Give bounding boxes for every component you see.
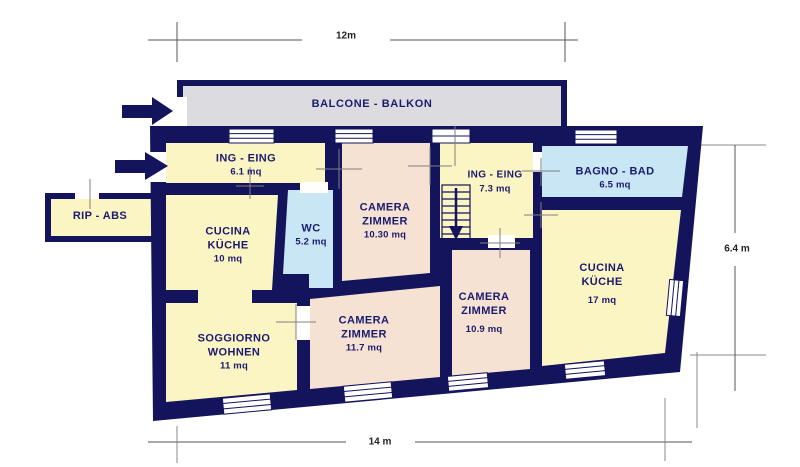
annex-door-opening xyxy=(75,193,99,199)
dimension-top-label: 12m xyxy=(336,31,356,42)
floor-plan: 12m 14 m 6.4 m BALCONE - BALKON RIP - AB… xyxy=(0,0,800,467)
room-label-wc: WC 5.2 mq xyxy=(295,222,326,249)
room-label-ing-eing-1: ING - EING 6.1 mq xyxy=(216,152,276,179)
room-label-cucina-17: CUCINA KÜCHE 17 mq xyxy=(579,261,624,307)
entrance-arrow-icon xyxy=(122,97,173,125)
dimension-bottom-label: 14 m xyxy=(369,437,392,448)
window-symbol xyxy=(575,130,617,144)
balcony-door-opening xyxy=(177,97,187,127)
window-symbol xyxy=(447,373,488,392)
room-label-camera-109: CAMERA ZIMMER 10.9 mq xyxy=(459,290,510,336)
corridor-door-opening xyxy=(488,235,515,248)
soggiorno-camera-door-opening xyxy=(296,306,310,340)
window-symbol xyxy=(229,129,274,143)
room-label-camera-117: CAMERA ZIMMER 11.7 mq xyxy=(339,314,390,355)
window-symbol xyxy=(666,279,683,316)
room-label-ing-eing-2: ING - EING 7.3 mq xyxy=(467,169,522,196)
window-symbol xyxy=(335,129,373,143)
window-symbol xyxy=(564,361,605,380)
window-symbol xyxy=(432,129,470,143)
balcony-label: BALCONE - BALKON xyxy=(312,97,433,111)
room-label-camera-1030: CAMERA ZIMMER 10.30 mq xyxy=(360,201,411,242)
room-label-cucina-10: CUCINA KÜCHE 10 mq xyxy=(205,225,250,266)
wc-door-opening xyxy=(300,182,328,193)
dimension-side-label: 6.4 m xyxy=(724,244,750,255)
opening-cucina-soggiorno xyxy=(198,288,252,305)
room-label-soggiorno: SOGGIORNO WOHNEN 11 mq xyxy=(198,332,271,373)
room-label-bagno: BAGNO - BAD 6.5 mq xyxy=(576,165,655,192)
annex-label: RIP - ABS xyxy=(73,209,127,223)
